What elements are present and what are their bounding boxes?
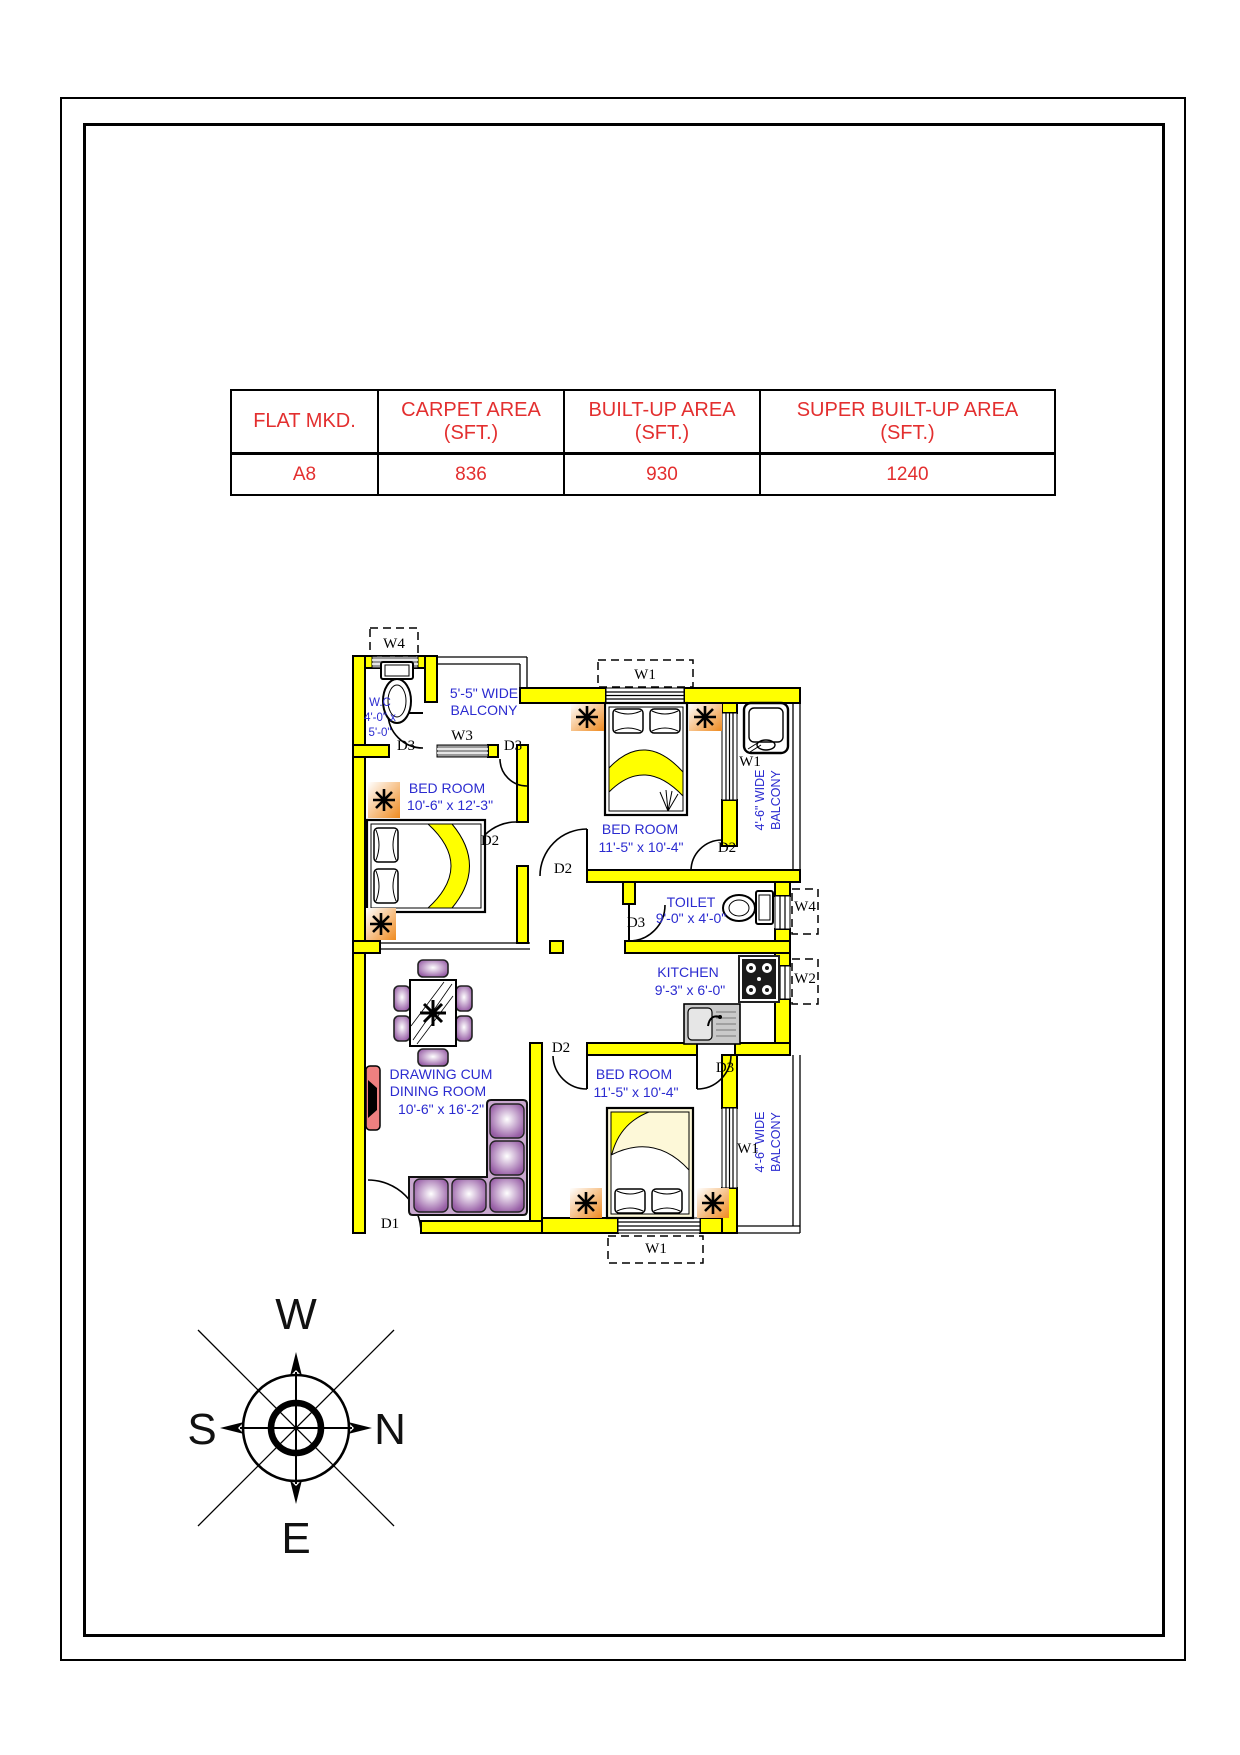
label-bedroom-left: BED ROOM — [409, 780, 485, 796]
compass-letter-top: W — [275, 1290, 317, 1339]
compass-letter-left: S — [187, 1405, 216, 1454]
label-balcony-right-bottom-2: BALCONY — [769, 1111, 783, 1171]
label-wc-dims-2: 5'-0" — [369, 727, 392, 739]
kitchen-sink — [684, 1004, 740, 1044]
tag-d3-toilet: D3 — [627, 915, 645, 931]
pillow — [652, 1189, 682, 1213]
compass-rose: W S N E — [187, 1290, 406, 1563]
label-balcony-top-2: BALCONY — [451, 702, 519, 718]
label-balcony-top-1: 5'-5" WIDE — [450, 685, 518, 701]
stove-icon — [739, 956, 779, 1002]
compass-letter-right: N — [374, 1405, 406, 1454]
bed-bottom — [607, 1108, 693, 1218]
plant-icon — [702, 1192, 724, 1214]
dining-table-set — [394, 960, 472, 1066]
plant-icon — [373, 789, 395, 811]
label-bedroom-bottom-dims: 11'-5" x 10'-4" — [593, 1084, 678, 1100]
pillow — [374, 828, 398, 862]
bed-top-right — [605, 703, 687, 815]
tag-w1-right-top: W1 — [739, 754, 761, 770]
label-toilet-dims: 9'-0" x 4'-0" — [656, 910, 727, 926]
tag-d2-left-bedroom: D2 — [481, 833, 499, 849]
tag-d1-entrance: D1 — [381, 1216, 399, 1232]
room-labels: W.C 4'-0" x 5'-0" 5'-5" WIDE BALCONY BED… — [364, 685, 783, 1173]
tag-w1-top: W1 — [634, 667, 656, 683]
label-bedroom-bottom: BED ROOM — [596, 1066, 672, 1082]
pillow — [613, 709, 643, 733]
tag-w1-bottom: W1 — [645, 1241, 667, 1257]
toilet-wc-fixture — [723, 891, 773, 924]
washbasin — [744, 703, 788, 753]
label-drawing-dims: 10'-6" x 16'-2" — [398, 1101, 484, 1117]
pillow — [374, 869, 398, 903]
label-wc-dims-1: 4'-0" x — [364, 712, 396, 724]
tag-d2-bottom-bedroom: D2 — [552, 1040, 570, 1056]
tag-d2-balcony: D2 — [718, 840, 736, 856]
bed-left — [367, 820, 485, 912]
label-bedroom-left-dims: 10'-6" x 12'-3" — [407, 797, 493, 813]
tag-w2-kitchen: W2 — [794, 971, 816, 987]
window-w1-right-bottom-icon — [722, 1108, 737, 1188]
floor-plan-drawing: W.C 4'-0" x 5'-0" 5'-5" WIDE BALCONY BED… — [0, 0, 1240, 1755]
tag-w4-toilet: W4 — [794, 899, 816, 915]
compass-arrow-up — [290, 1352, 302, 1428]
label-balcony-right-top-1: 4'-6" WIDE — [753, 770, 767, 831]
plant-icon — [576, 706, 598, 728]
plant-icon — [694, 706, 716, 728]
tag-w1-right-bottom: W1 — [737, 1141, 759, 1157]
compass-arrow-right — [296, 1422, 372, 1434]
tag-d2-top-right-bedroom: D2 — [554, 861, 572, 877]
plant-icon — [575, 1192, 597, 1214]
label-balcony-right-top-2: BALCONY — [769, 769, 783, 829]
label-kitchen-dims: 9'-3" x 6'-0" — [655, 982, 726, 998]
tag-d3-hall: D3 — [504, 738, 522, 754]
label-drawing-1: DRAWING CUM — [390, 1066, 493, 1082]
compass-arrow-down — [290, 1428, 302, 1504]
l-shaped-sofa — [409, 1100, 527, 1215]
window-w3-icon — [437, 745, 488, 757]
pillow — [615, 1189, 645, 1213]
tag-d3-wc: D3 — [397, 738, 415, 754]
drawing-sheet: FLAT MKD. CARPET AREA (SFT.) BUILT-UP AR… — [0, 0, 1240, 1755]
tag-w4-top: W4 — [383, 636, 405, 652]
tag-w3: W3 — [451, 728, 473, 744]
label-bedroom-top-right-dims: 11'-5" x 10'-4" — [598, 839, 683, 855]
compass-arrow-left — [220, 1422, 296, 1434]
label-kitchen: KITCHEN — [657, 964, 718, 980]
tv-unit — [366, 1066, 380, 1130]
label-wc: W.C — [369, 697, 391, 709]
window-w1-right-top-icon — [722, 713, 737, 800]
label-bedroom-top-right: BED ROOM — [602, 821, 678, 837]
plant-icon — [370, 913, 392, 935]
label-toilet: TOILET — [667, 894, 716, 910]
tag-d3-bottom-bedroom: D3 — [716, 1060, 734, 1076]
label-drawing-2: DINING ROOM — [390, 1083, 486, 1099]
compass-letter-bottom: E — [281, 1514, 310, 1563]
pillow — [650, 709, 680, 733]
